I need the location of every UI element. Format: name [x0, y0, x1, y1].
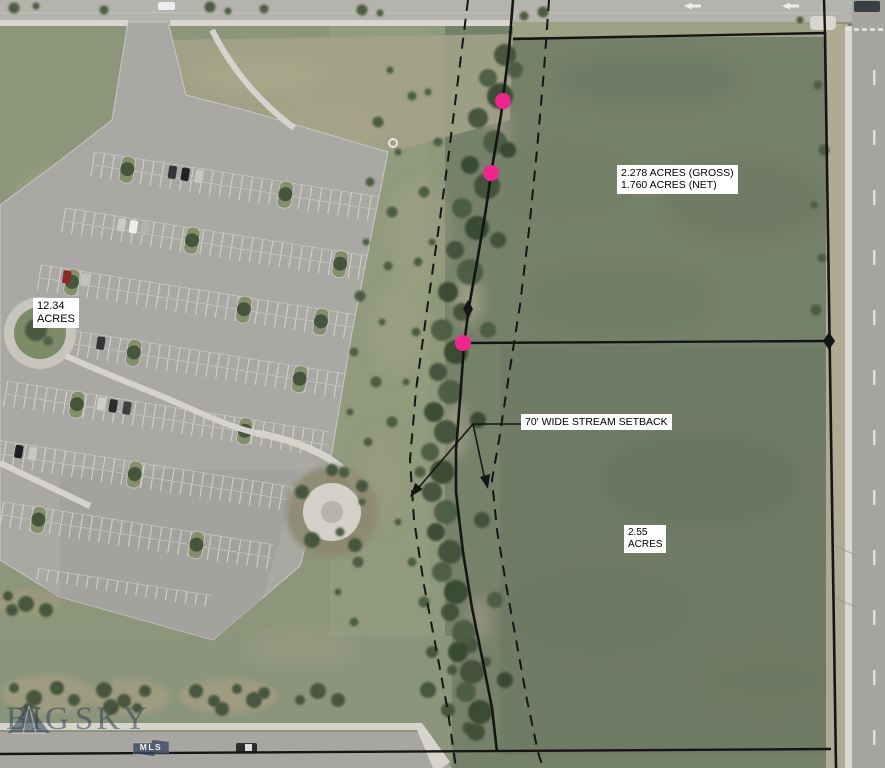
acreage-line: 2.278 ACRES (GROSS) — [621, 167, 734, 179]
acreage-line: ACRES — [37, 313, 75, 326]
survey-point-pink — [455, 335, 471, 351]
acreage-line: 2.55 — [628, 527, 662, 539]
acreage-line: 12.34 — [37, 300, 75, 313]
survey-point-pink — [483, 165, 499, 181]
acreage-line: 1.760 ACRES (NET) — [621, 179, 734, 191]
mls-badge-text: MLS — [133, 742, 169, 752]
aerial-parcel-map: 12.34 ACRES 2.278 ACRES (GROSS) 1.760 AC… — [0, 0, 885, 768]
aerial-imagery — [0, 0, 885, 768]
survey-point-pink — [495, 93, 511, 109]
acreage-line: ACRES — [628, 539, 662, 551]
mountain-logo-icon — [6, 703, 52, 735]
curb-ramp — [810, 16, 836, 30]
mls-state-badge: MLS — [133, 739, 169, 757]
label-acres-12-34: 12.34 ACRES — [33, 298, 79, 328]
watermark-word: SKY — [75, 703, 150, 736]
label-acres-gross-net: 2.278 ACRES (GROSS) 1.760 ACRES (NET) — [617, 165, 738, 194]
label-stream-setback: 70' WIDE STREAM SETBACK — [521, 414, 672, 430]
big-sky-mls-watermark: BIG SKY — [6, 703, 150, 736]
label-acres-2-55: 2.55 ACRES — [624, 525, 666, 553]
